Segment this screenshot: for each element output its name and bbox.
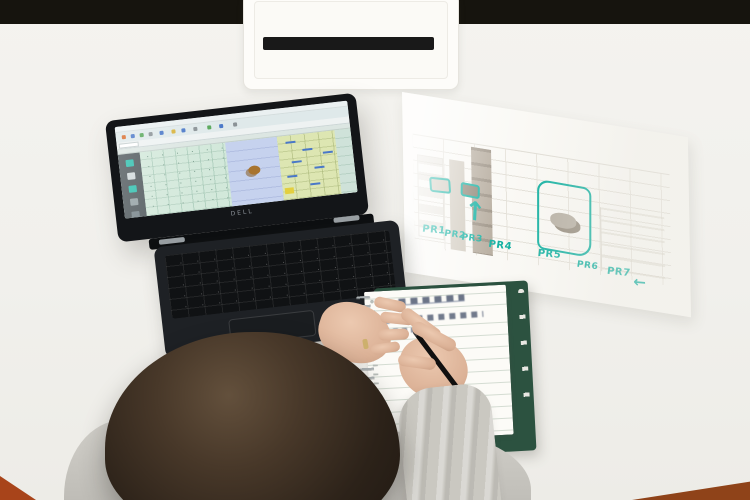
cover-spiral-holes [518,289,530,409]
floor-plan-paper: ↑ PR1 PR2 PR3 PR4 PR5 PR6 PR7 ← [402,92,691,317]
paper-sheen [402,92,691,317]
left-hand-finger [378,328,409,340]
wood-floor-right [632,480,750,500]
cable-box-slot [263,37,434,50]
desk-cable-box [243,0,459,90]
desk-scene: ↑ PR1 PR2 PR3 PR4 PR5 PR6 PR7 ← [0,0,750,500]
handwritten-title [398,294,464,306]
wood-floor-left [0,476,36,500]
